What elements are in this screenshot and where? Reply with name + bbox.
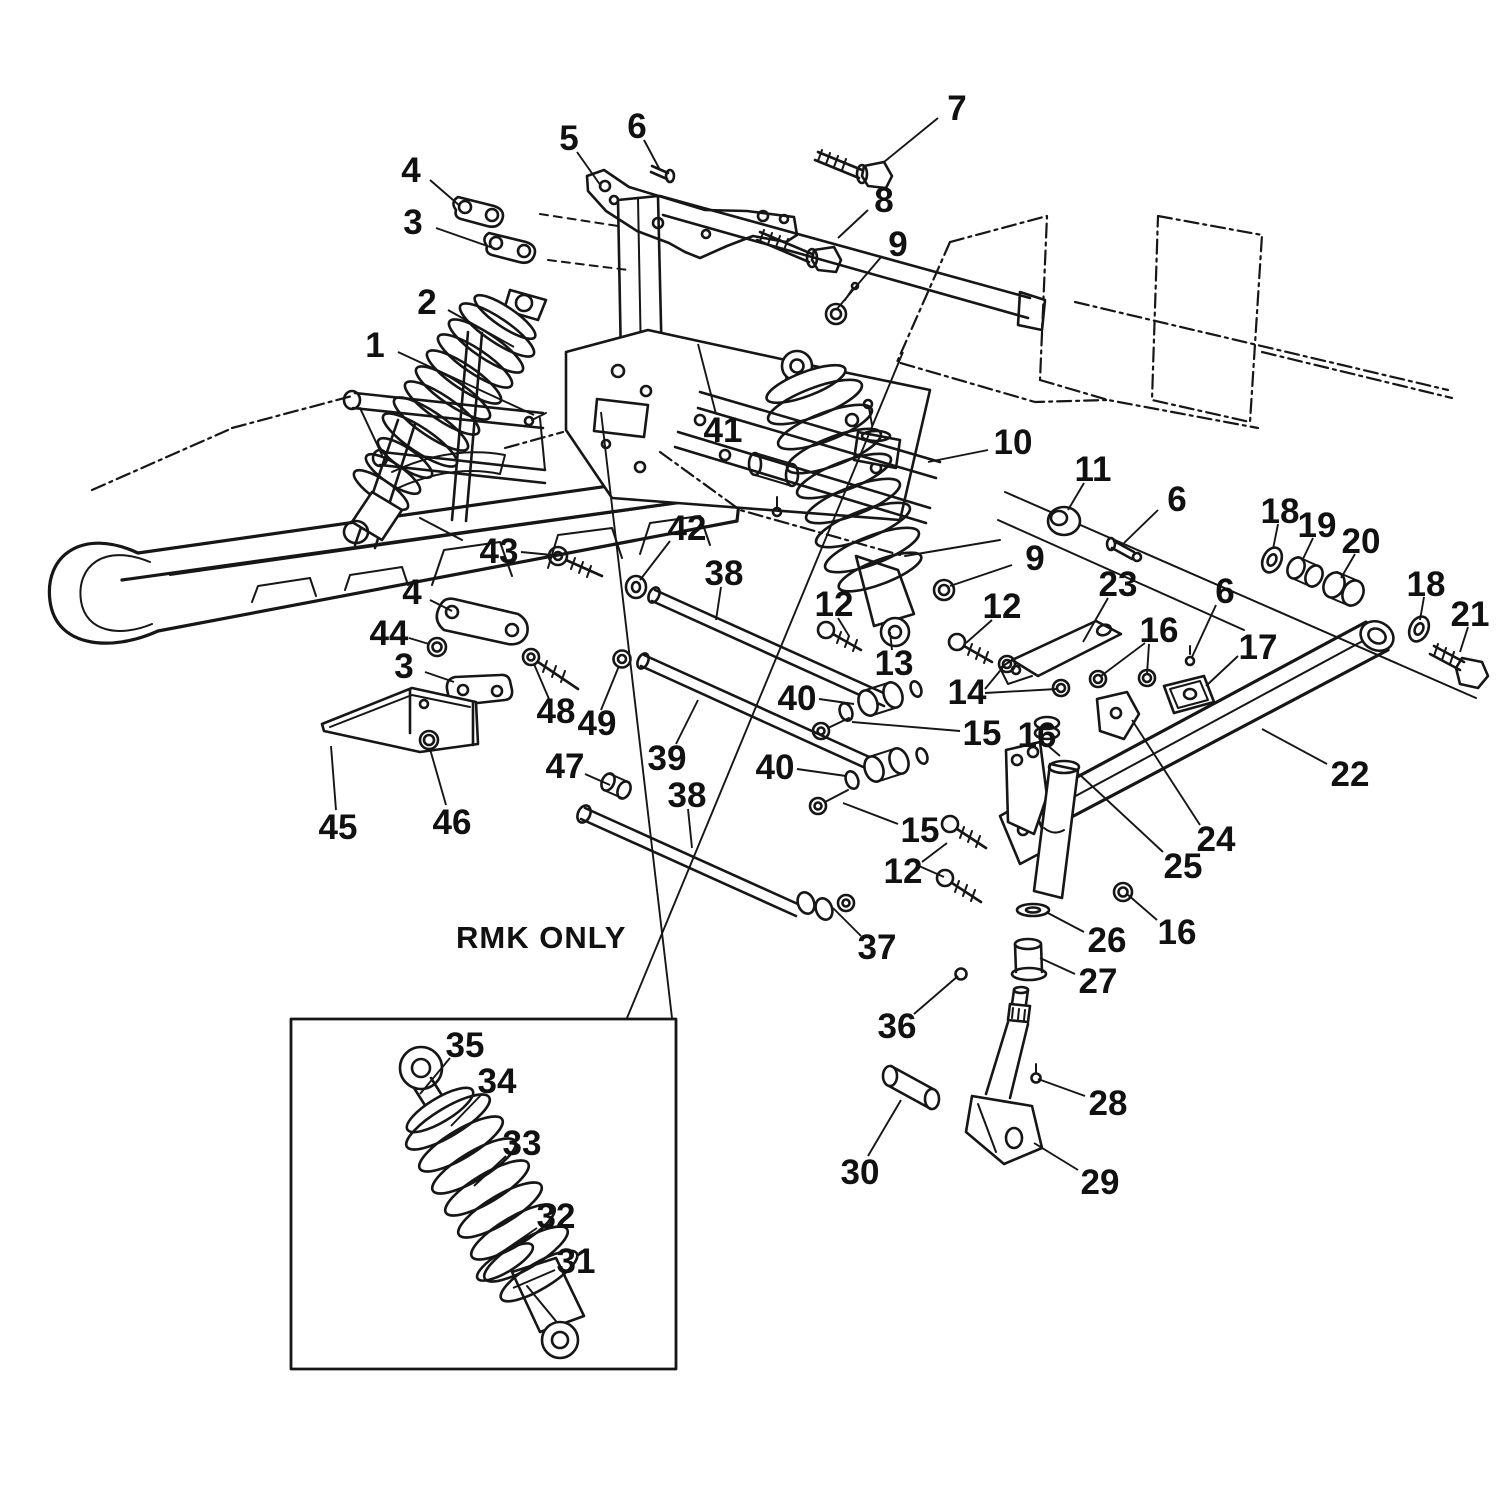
callout-number: 38 — [668, 776, 707, 815]
callout-number: 21 — [1451, 595, 1490, 634]
exploded-parts-diagram: 1234567891011692312121314151661718192018… — [0, 0, 1500, 1500]
parts-diagram-page: 1234567891011692312121314151661718192018… — [0, 0, 1500, 1500]
callout-number: 10 — [994, 423, 1033, 462]
callout-number: 6 — [1215, 572, 1234, 611]
callout-number: 1 — [365, 326, 384, 365]
callout-number: 33 — [503, 1124, 542, 1163]
leader-line — [868, 1100, 901, 1156]
leader-line — [1124, 510, 1158, 543]
leader-line — [1262, 729, 1327, 764]
leader-line — [1101, 643, 1145, 676]
callout-number: 40 — [778, 679, 817, 718]
callout-number: 15 — [963, 714, 1002, 753]
callout-number: 31 — [557, 1242, 596, 1281]
leader-line — [838, 210, 868, 238]
callout-number: 4 — [402, 573, 422, 612]
callout-number: 47 — [546, 747, 585, 786]
callout-number: 4 — [401, 151, 421, 190]
leader-line — [985, 666, 1004, 689]
leader-line — [425, 672, 454, 682]
callout-number: 43 — [480, 532, 519, 571]
callout-number: 38 — [705, 554, 744, 593]
callout-number: 16 — [1158, 913, 1197, 952]
callout-number: 7 — [947, 89, 966, 128]
callout-number: 45 — [319, 808, 358, 847]
callout-number: 17 — [1239, 628, 1278, 667]
callout-number: 39 — [648, 739, 687, 778]
callout-number: 5 — [559, 119, 578, 158]
leader-line — [928, 450, 988, 462]
leader-line — [1046, 912, 1084, 932]
leader-line — [640, 541, 670, 580]
leader-line — [819, 699, 854, 704]
callout-number: 36 — [878, 1007, 917, 1046]
callout-number: 11 — [1075, 450, 1112, 489]
callout-number: 15 — [901, 811, 940, 850]
callout-number: 16 — [1140, 611, 1179, 650]
leader-line — [1127, 894, 1157, 920]
callout-number: 12 — [815, 585, 854, 624]
callout-number: 3 — [394, 647, 413, 686]
leader-line — [843, 803, 898, 824]
callout-number: 46 — [433, 803, 472, 842]
callout-number: 28 — [1089, 1084, 1128, 1123]
callout-number: 8 — [874, 181, 893, 220]
callout-number: 18 — [1407, 565, 1446, 604]
leader-line — [331, 746, 336, 810]
leader-line — [836, 256, 882, 310]
callout-number: 16 — [1018, 716, 1057, 755]
leader-line — [409, 638, 429, 644]
leader-line — [1034, 1143, 1078, 1170]
callout-number: 2 — [417, 283, 436, 322]
callout-number: 40 — [756, 748, 795, 787]
callout-number: 6 — [1167, 480, 1186, 519]
leader-line — [1132, 720, 1200, 825]
callout-number: 42 — [668, 509, 707, 548]
callout-number: 25 — [1164, 847, 1203, 886]
callout-number: 9 — [1025, 539, 1044, 578]
callout-number: 37 — [858, 928, 897, 967]
callout-number: 13 — [875, 644, 914, 683]
leader-line — [985, 689, 1057, 693]
leader-line — [884, 118, 938, 162]
callout-number: 27 — [1079, 962, 1118, 1001]
callout-number: 35 — [446, 1026, 485, 1065]
callout-number: 41 — [704, 411, 743, 450]
callout-number: 32 — [537, 1197, 576, 1236]
callout-number: 29 — [1081, 1163, 1120, 1202]
leader-line — [430, 180, 460, 206]
rmk-only-label: RMK ONLY — [456, 920, 626, 955]
callout-number: 26 — [1088, 921, 1127, 960]
callout-number: 12 — [983, 587, 1022, 626]
leader-line — [914, 976, 958, 1014]
callout-number: 19 — [1298, 506, 1337, 545]
callout-number: 3 — [403, 203, 422, 242]
callout-number: 48 — [537, 692, 576, 731]
bumper-bracket — [322, 688, 478, 752]
callout-number: 34 — [478, 1062, 517, 1101]
callout-number: 9 — [888, 225, 907, 264]
callout-number: 22 — [1331, 755, 1370, 794]
callout-number: 49 — [578, 704, 617, 743]
callout-number: 14 — [948, 673, 987, 712]
leader-line — [1206, 656, 1238, 686]
leader-line — [797, 769, 846, 776]
leader-line — [676, 700, 698, 744]
leader-line — [436, 228, 496, 249]
leader-line — [430, 749, 446, 805]
callout-number: 30 — [841, 1153, 880, 1192]
leader-line — [1038, 1079, 1085, 1096]
callout-number: 23 — [1099, 565, 1138, 604]
leader-line — [577, 152, 601, 186]
leader-line — [1079, 774, 1163, 852]
leader-line — [521, 552, 552, 555]
leader-line — [950, 565, 1012, 586]
callout-number: 20 — [1342, 522, 1381, 561]
callout-number: 12 — [884, 852, 923, 891]
callout-number: 6 — [627, 107, 646, 146]
callout-number: 18 — [1261, 492, 1300, 531]
leader-line — [852, 722, 960, 731]
